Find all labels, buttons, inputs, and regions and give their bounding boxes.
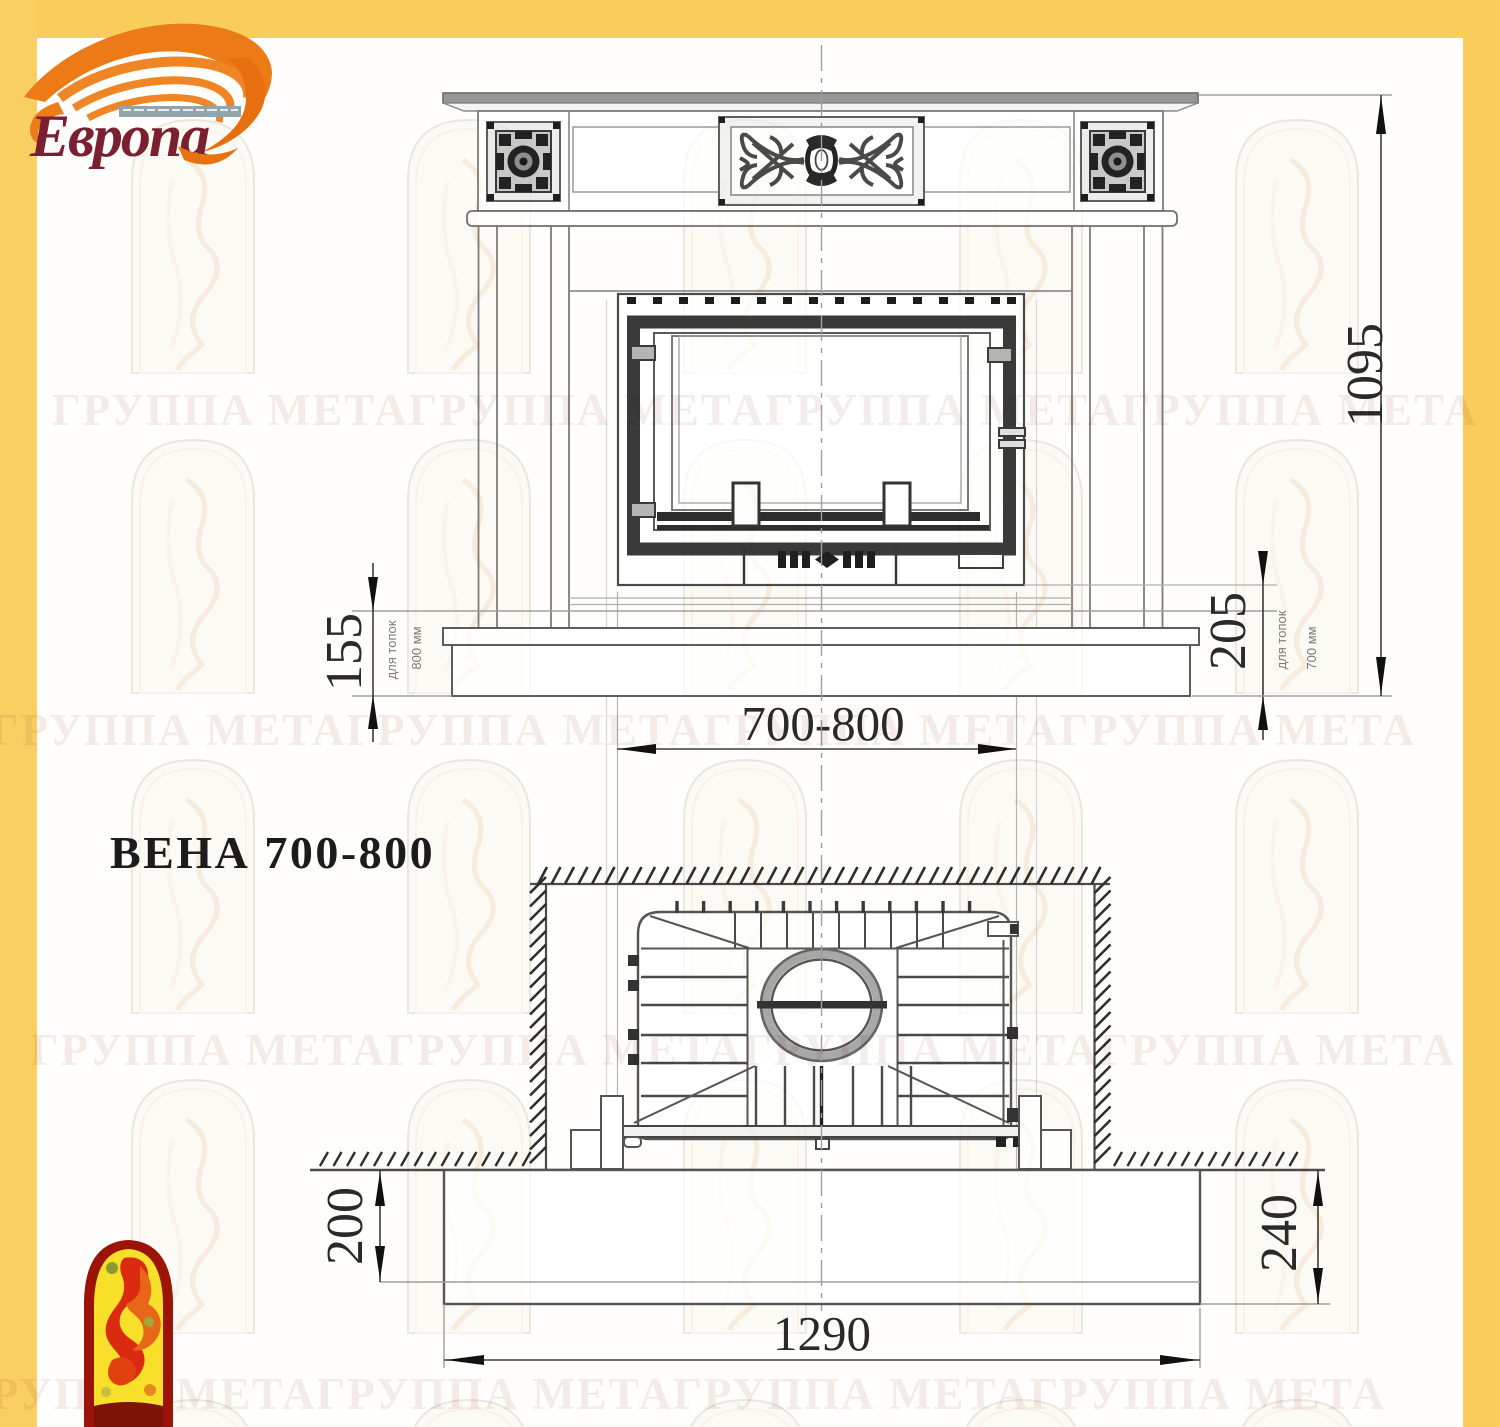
svg-text:155: 155 (316, 613, 373, 691)
svg-text:200: 200 (317, 1187, 374, 1265)
svg-text:для топок: для топок (384, 620, 399, 679)
